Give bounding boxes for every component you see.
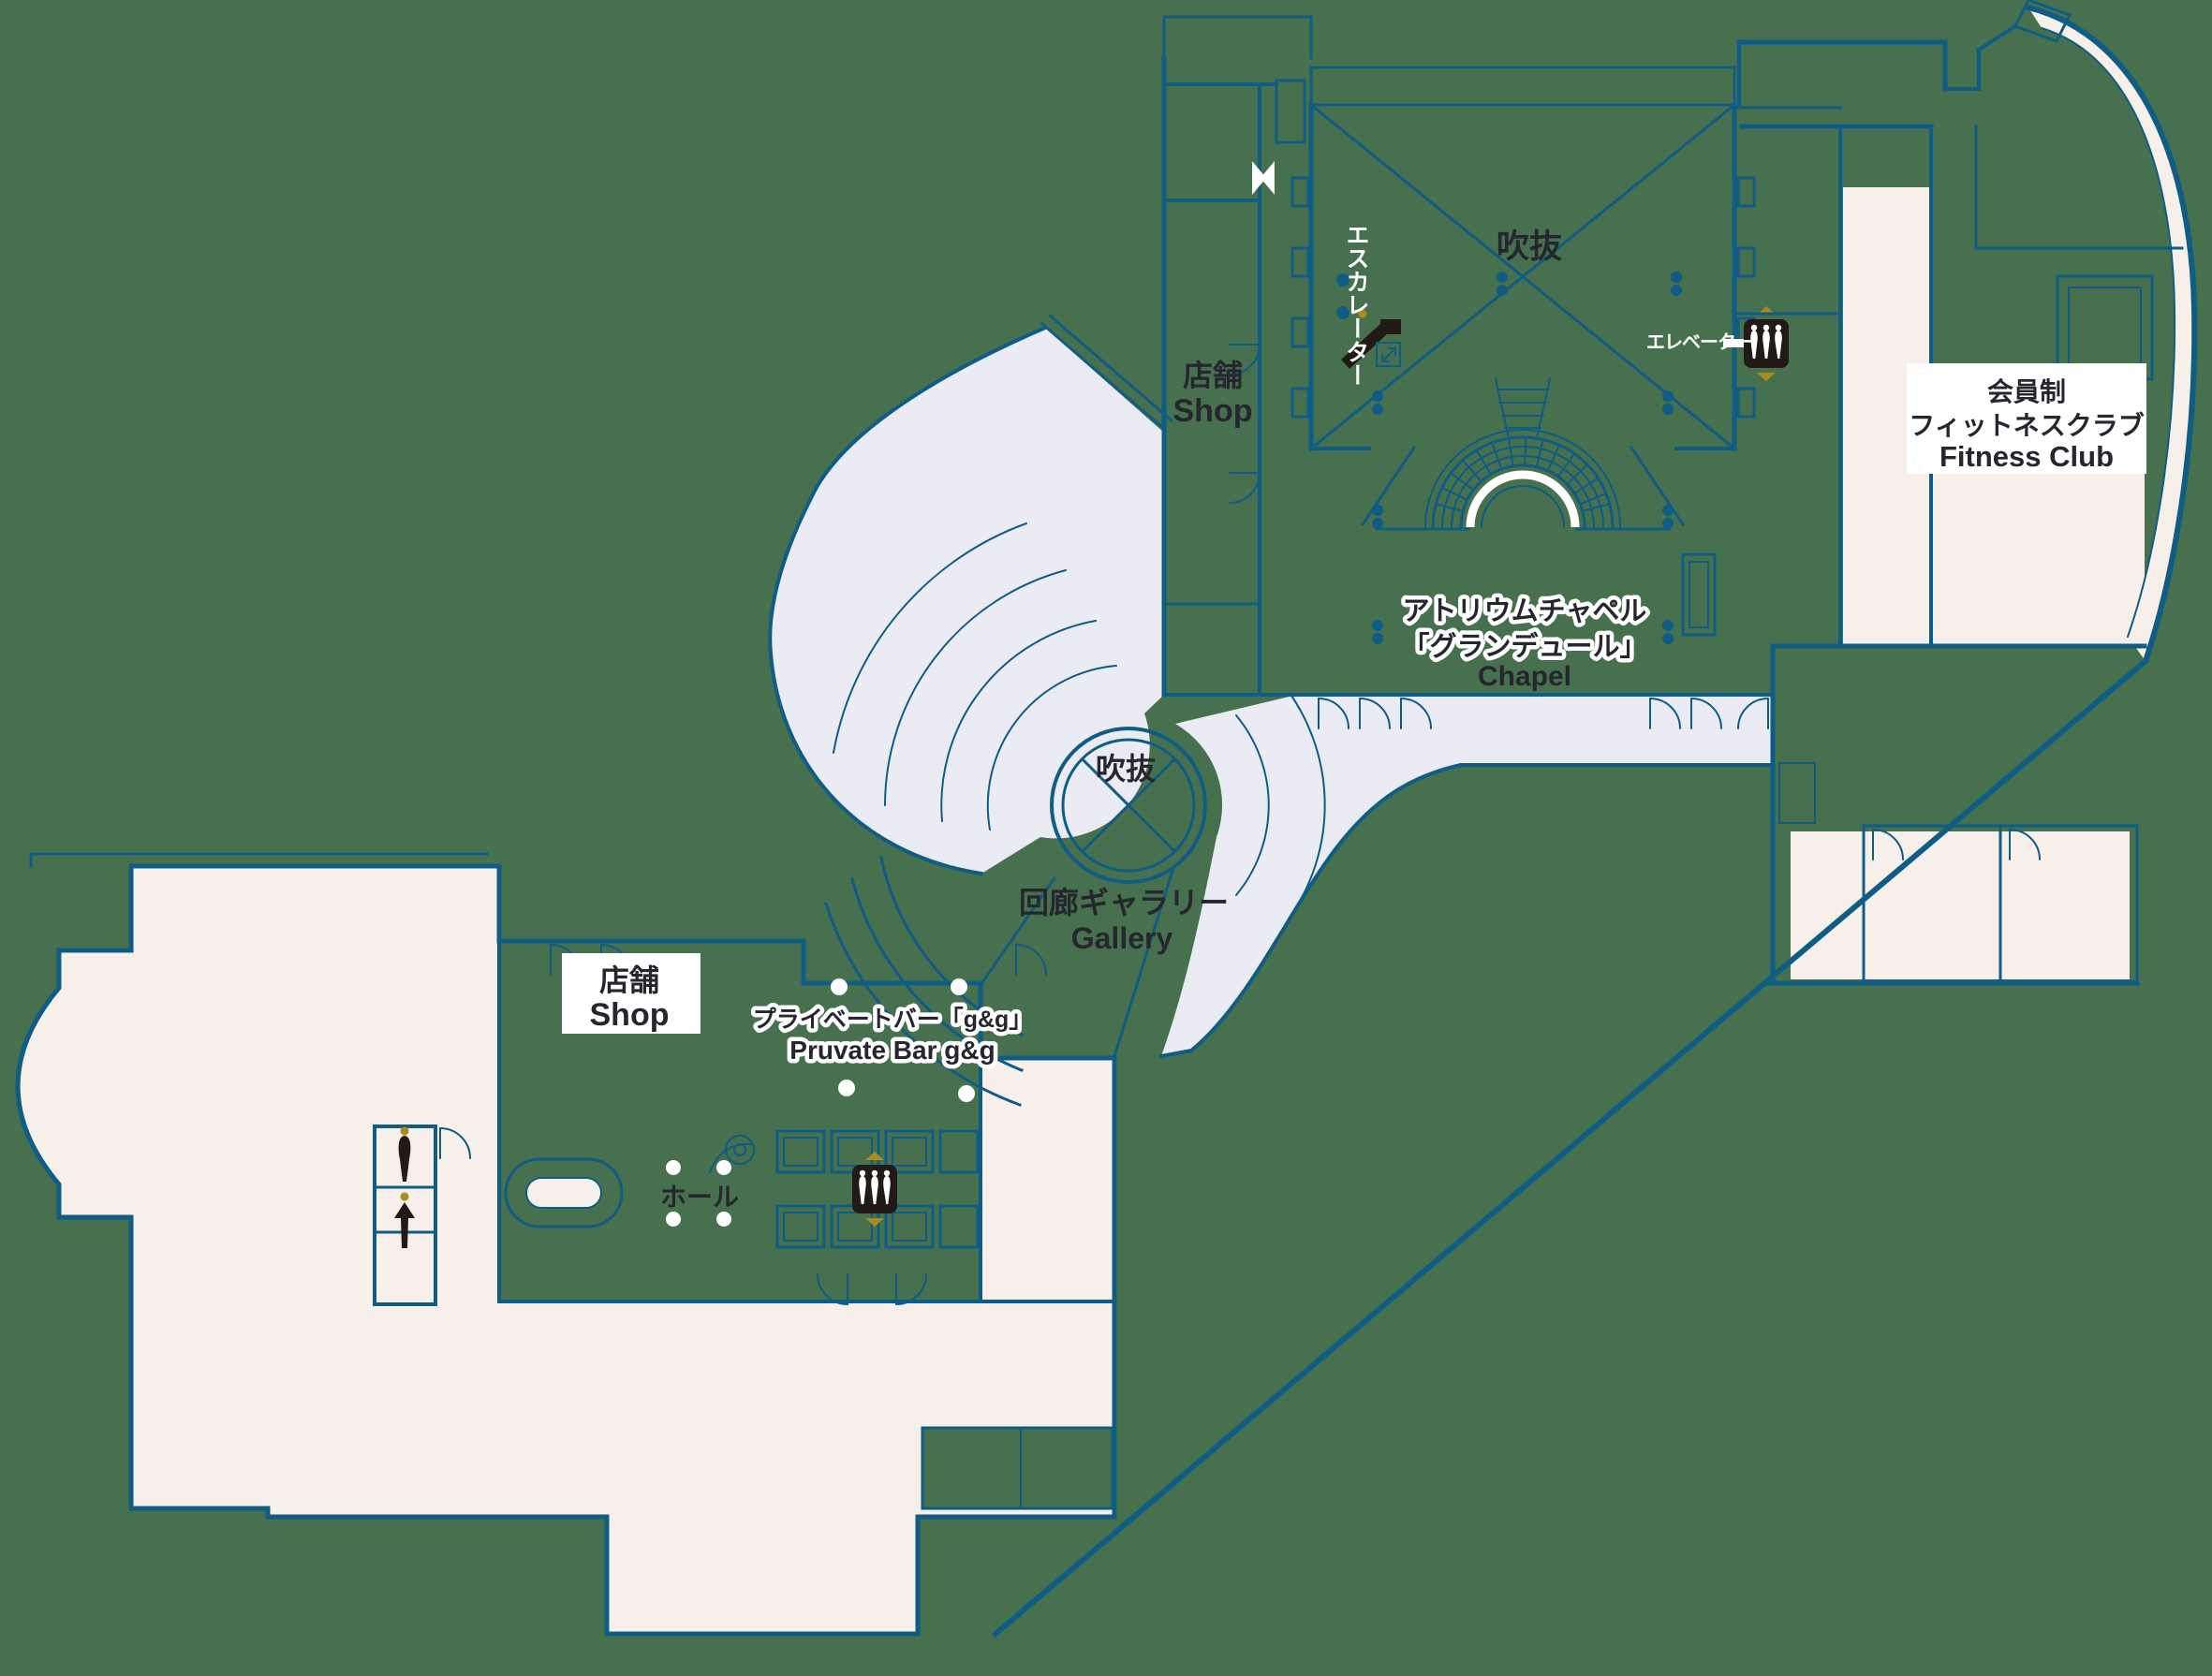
gallery-label-ja: 回廊ギャラリー: [1019, 886, 1229, 919]
chapel-label-3: Chapel: [1478, 661, 1571, 692]
floor-plan-svg: 吹抜 店舗 Shop エスカレーター エレベーター 会員制 フィットネスクラブ …: [0, 0, 2212, 1676]
fitness-club-label-2: フィットネスクラブ: [1909, 410, 2144, 440]
hall-label: ホール: [660, 1183, 739, 1212]
atrium-upper-label: 吹抜: [1497, 228, 1562, 265]
shop-upper-label-ja: 店舗: [1183, 359, 1243, 392]
elevator-upper-label: エレベーター: [1646, 331, 1753, 353]
escalator-label: エスカレーター: [1343, 223, 1369, 387]
atrium-center-label: 吹抜: [1096, 752, 1156, 786]
chapel-label-2: 「グランデュール」: [1402, 630, 1646, 662]
fitness-club-label-1: 会員制: [1987, 377, 2066, 406]
fitness-club-label-3: Fitness Club: [1939, 440, 2114, 473]
gallery-label-en: Gallery: [1071, 921, 1173, 955]
private-bar-label-en: Pruvate Bar g&g: [789, 1036, 995, 1065]
floor-map-page: 吹抜 店舗 Shop エスカレーター エレベーター 会員制 フィットネスクラブ …: [0, 0, 2212, 1676]
shop-lower-label-en: Shop: [590, 997, 670, 1033]
chapel-label-1: アトリウムチャペル: [1403, 596, 1647, 626]
shop-upper-label-en: Shop: [1173, 393, 1253, 429]
shop-lower-label-ja: 店舗: [599, 963, 659, 997]
private-bar-label-ja: プライベートバー「g&g」: [753, 1006, 1033, 1033]
